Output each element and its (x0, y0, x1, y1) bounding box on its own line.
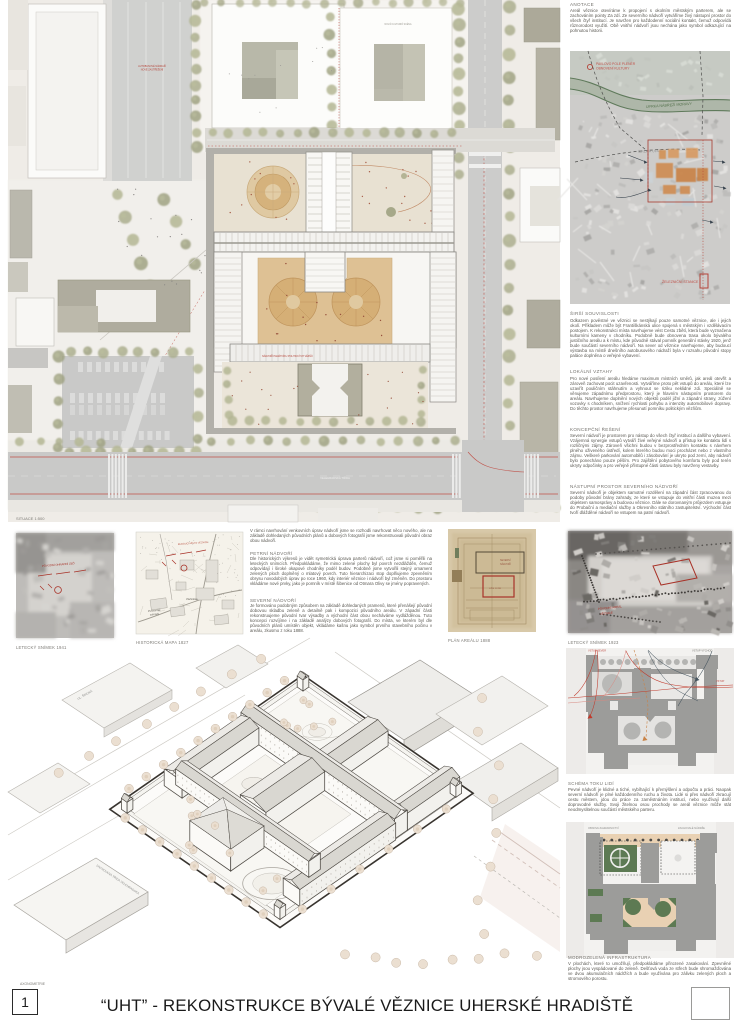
svg-text:Všehrdova: Všehrdova (186, 598, 198, 601)
svg-text:VSTUP SEVER: VSTUP SEVER (588, 649, 606, 653)
svg-text:SITUACE 1:500: SITUACE 1:500 (16, 516, 45, 521)
svg-text:VSTUP VÝCHOD: VSTUP VÝCHOD (692, 649, 713, 653)
svg-text:OBNOVA ZAHRADNICTVÍ: OBNOVA ZAHRADNICTVÍ (588, 826, 619, 830)
svg-text:NÁDVOŘÍ: NÁDVOŘÍ (500, 563, 511, 566)
svg-text:VELEHRADSKÁ TŘÍDA: VELEHRADSKÁ TŘÍDA (320, 475, 350, 480)
svg-text:VSTUP: VSTUP (716, 680, 725, 683)
svg-text:SEVERNÍ: SEVERNÍ (500, 559, 511, 562)
svg-text:OBNOVENÍ KULTURY: OBNOVENÍ KULTURY (596, 67, 630, 71)
svg-text:ŽELEZNIČNÍ STANICE: ŽELEZNIČNÍ STANICE (662, 279, 699, 284)
svg-text:AUTOBUSOVÉ NÁDRAŽÍ: AUTOBUSOVÉ NÁDRAŽÍ (138, 65, 166, 68)
svg-text:AXONOMETRIE: AXONOMETRIE (20, 982, 46, 986)
svg-text:PAVLOVO POLE PLENÉR: PAVLOVO POLE PLENÉR (596, 61, 636, 66)
svg-text:NÁDVOŘÍ PAMÁTNÍKU POLITICKÝCH: NÁDVOŘÍ PAMÁTNÍKU POLITICKÝCH VĚZŇŮ (262, 355, 313, 358)
svg-text:NOVÉ ZASTŘEŠENÍ: NOVÉ ZASTŘEŠENÍ (141, 69, 164, 72)
svg-text:NOVÁ KULTURNÍ SCÉNA: NOVÁ KULTURNÍ SCÉNA (384, 23, 411, 26)
svg-text:JIŽNÍ DVŮR: JIŽNÍ DVŮR (489, 587, 501, 590)
